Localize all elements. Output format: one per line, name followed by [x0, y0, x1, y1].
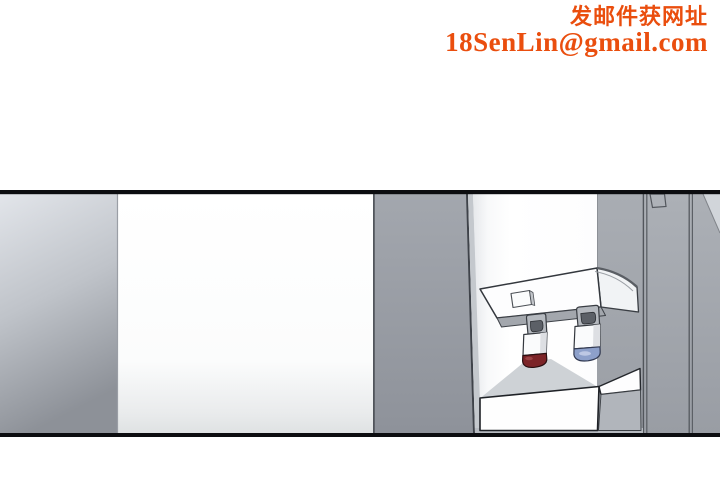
panel-border-top — [0, 190, 720, 194]
right-wall — [643, 194, 720, 433]
page: 发邮件获网址 18SenLin@gmail.com — [0, 0, 720, 500]
comic-panel — [0, 190, 720, 437]
left-wall — [0, 194, 117, 433]
promo-text: 发邮件获网址 — [445, 3, 708, 30]
panel-border-bottom — [0, 433, 720, 437]
cold-tap-lever — [581, 312, 596, 324]
hot-tap-lever — [531, 320, 544, 331]
hot-tap-spout — [523, 353, 547, 367]
dispenser-button — [511, 291, 532, 308]
email-text: 18SenLin@gmail.com — [445, 30, 708, 54]
hot-water-tap — [523, 313, 547, 367]
header-contact: 发邮件获网址 18SenLin@gmail.com — [445, 3, 708, 54]
cold-tap-body-shade — [593, 324, 600, 347]
hot-tap-highlight — [525, 357, 533, 361]
bright-wall-panel — [117, 194, 373, 433]
cold-tap-highlight — [579, 351, 591, 355]
cabinet-side — [599, 390, 642, 431]
hot-tap-body-shade — [540, 332, 547, 354]
gray-column — [373, 194, 474, 433]
wall-flap — [650, 194, 666, 208]
cold-water-tap — [574, 305, 600, 361]
